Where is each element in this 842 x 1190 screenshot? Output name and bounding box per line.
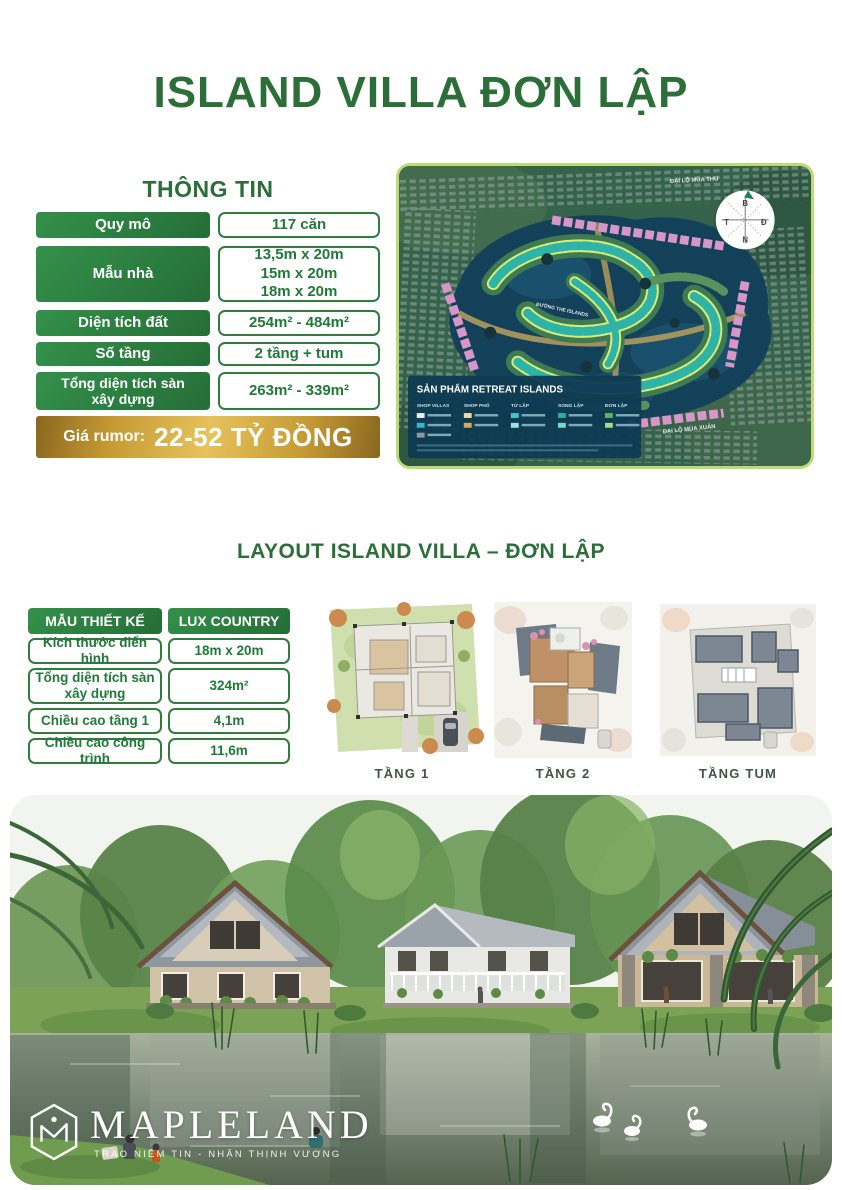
legend-col-4: SONG LẬP (558, 402, 584, 409)
layout-value-tongdt: 324m² (168, 668, 290, 704)
price-value: 22-52 TỶ ĐỒNG (154, 422, 353, 453)
compass-east: Đ (761, 218, 767, 227)
legend-col-5: ĐƠN LẬP (605, 402, 628, 409)
layout-heading: LAYOUT ISLAND VILLA – ĐƠN LẬP (0, 540, 842, 564)
brand-tagline: TRAO NIỀM TIN - NHẬN THỊNH VƯỢNG (90, 1149, 373, 1160)
info-value-dientichdat: 254m² - 484m² (218, 310, 380, 336)
page-title: ISLAND VILLA ĐƠN LẬP (0, 68, 842, 118)
layout-label-chieucaoct: Chiều cao công trình (28, 738, 162, 764)
info-value-tongdientich: 263m² - 339m² (218, 372, 380, 410)
info-heading: THÔNG TIN (36, 176, 380, 203)
info-label-sotang: Số tầng (36, 342, 210, 366)
floorplan-tang1 (314, 596, 490, 760)
info-label-quymo: Quy mô (36, 212, 210, 238)
layout-value-chieucaot1: 4,1m (168, 708, 290, 734)
legend-col-2: SHOP PHỐ (464, 402, 490, 409)
info-value-maunha: 13,5m x 20m 15m x 20m 18m x 20m (218, 246, 380, 302)
floorplan-tum (660, 604, 816, 756)
masterplan-map: ĐẠI LỘ MÙA THU ĐƯỜNG THE ISLANDS ĐẠI LỘ … (396, 163, 814, 469)
price-bar: Giá rumor: 22-52 TỶ ĐỒNG (36, 416, 380, 458)
info-label-maunha: Mẫu nhà (36, 246, 210, 302)
legend-col-1: SHOP VILLAS (417, 403, 450, 409)
layout-table-header-2: LUX COUNTRY (168, 608, 290, 634)
plan2-caption: TẦNG 2 (494, 766, 632, 781)
info-value-sotang: 2 tầng + tum (218, 342, 380, 366)
brand-name: MAPLELAND (90, 1105, 373, 1145)
plan1-caption: TẦNG 1 (314, 766, 490, 781)
compass-south: N (742, 235, 748, 244)
floorplan-tang2 (494, 602, 632, 758)
mapleland-hexagon-icon (28, 1103, 80, 1161)
info-value-quymo: 117 căn (218, 212, 380, 238)
info-label-tongdientich: Tổng diện tích sàn xây dựng (36, 372, 210, 410)
layout-label-tongdt: Tổng diện tích sàn xây dựng (28, 668, 162, 704)
compass-icon: B Đ N T (716, 191, 775, 250)
price-prefix: Giá rumor: (63, 428, 145, 446)
layout-value-kichthuoc: 18m x 20m (168, 638, 290, 664)
layout-label-kichthuoc: Kích thước điển hình (28, 638, 162, 664)
compass-north: B (742, 199, 748, 208)
legend-title: SẢN PHẨM RETREAT ISLANDS (417, 383, 564, 395)
legend-col-3: TỨ LẬP (511, 402, 530, 409)
flyer-page: ISLAND VILLA ĐƠN LẬP THÔNG TIN Quy mô 11… (0, 0, 842, 1190)
map-legend: SẢN PHẨM RETREAT ISLANDS SHOP VILLAS SHO… (408, 376, 641, 458)
layout-table-header-1: MẪU THIẾT KẾ (28, 608, 162, 634)
layout-label-chieucaot1: Chiều cao tầng 1 (28, 708, 162, 734)
info-label-dientichdat: Diện tích đất (36, 310, 210, 336)
masterplan-illustration: ĐẠI LỘ MÙA THU ĐƯỜNG THE ISLANDS ĐẠI LỘ … (399, 166, 811, 466)
brand-logo: MAPLELAND TRAO NIỀM TIN - NHẬN THỊNH VƯỢ… (28, 1103, 373, 1161)
compass-west: T (724, 218, 729, 227)
hero-photo: MAPLELAND TRAO NIỀM TIN - NHẬN THỊNH VƯỢ… (10, 795, 832, 1185)
plan3-caption: TẦNG TUM (660, 766, 816, 781)
layout-value-chieucaoct: 11,6m (168, 738, 290, 764)
